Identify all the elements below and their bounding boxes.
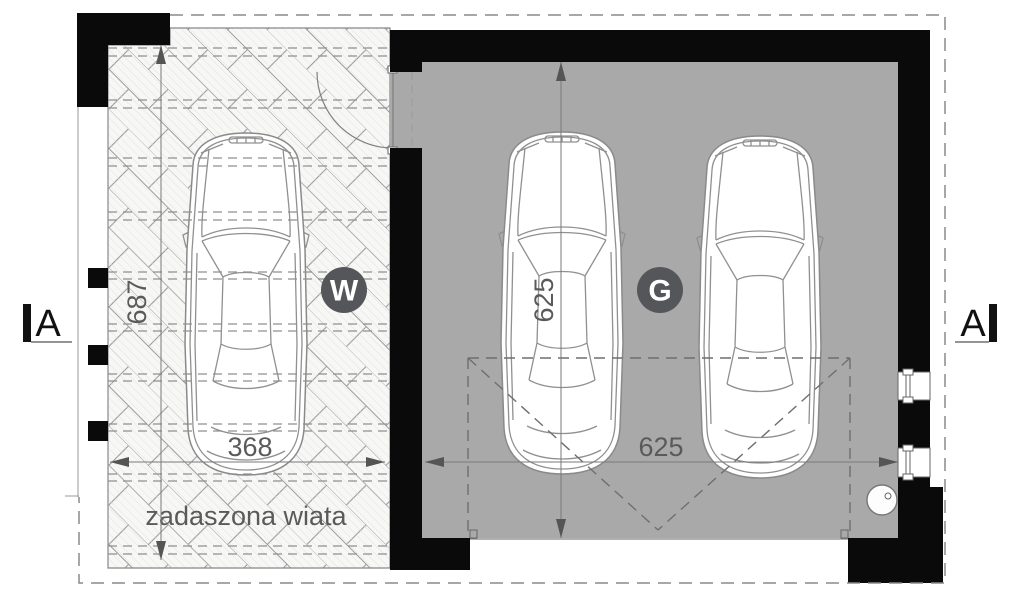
wall-top — [390, 30, 930, 62]
section-marker-left: A — [23, 303, 72, 345]
section-mark-bar — [23, 304, 31, 342]
wall-pillar — [88, 345, 108, 365]
section-mark-bar — [989, 304, 997, 342]
window-upper — [898, 369, 930, 403]
garage-symbol: G — [648, 275, 671, 308]
floor-fixture — [867, 485, 897, 515]
wall-left-upper — [390, 30, 422, 72]
wall-pillar — [88, 421, 108, 441]
section-letter-right: A — [960, 303, 986, 345]
garage-badge: G — [637, 267, 683, 313]
window-lower — [898, 445, 930, 480]
carport-symbol: W — [330, 275, 359, 308]
wall-pillar-corner-leg — [77, 13, 108, 107]
car-top-view-garage-right — [697, 136, 823, 478]
doorway-floor — [390, 72, 422, 148]
wall-bottom-left — [390, 538, 470, 570]
car-top-view-garage-left — [499, 132, 625, 474]
wall-bottom-right — [848, 538, 943, 583]
section-marker-right: A — [955, 303, 997, 345]
floor-plan-page: W zadaszona wiata G — [0, 0, 1010, 600]
garage-depth-dim: 625 — [529, 277, 559, 322]
wall-pillar — [88, 268, 108, 288]
garage-area: G — [390, 62, 898, 539]
carport-width-dim: 368 — [227, 432, 272, 462]
carport-depth-dim: 687 — [122, 279, 152, 324]
slab-edge — [65, 107, 79, 497]
floor-plan-drawing: W zadaszona wiata G — [0, 0, 1010, 600]
wall-left-lower — [390, 148, 422, 570]
section-letter-left: A — [35, 303, 61, 345]
carport-label: zadaszona wiata — [145, 501, 347, 531]
garage-width-dim: 625 — [638, 432, 683, 462]
carport-badge: W — [321, 267, 367, 313]
